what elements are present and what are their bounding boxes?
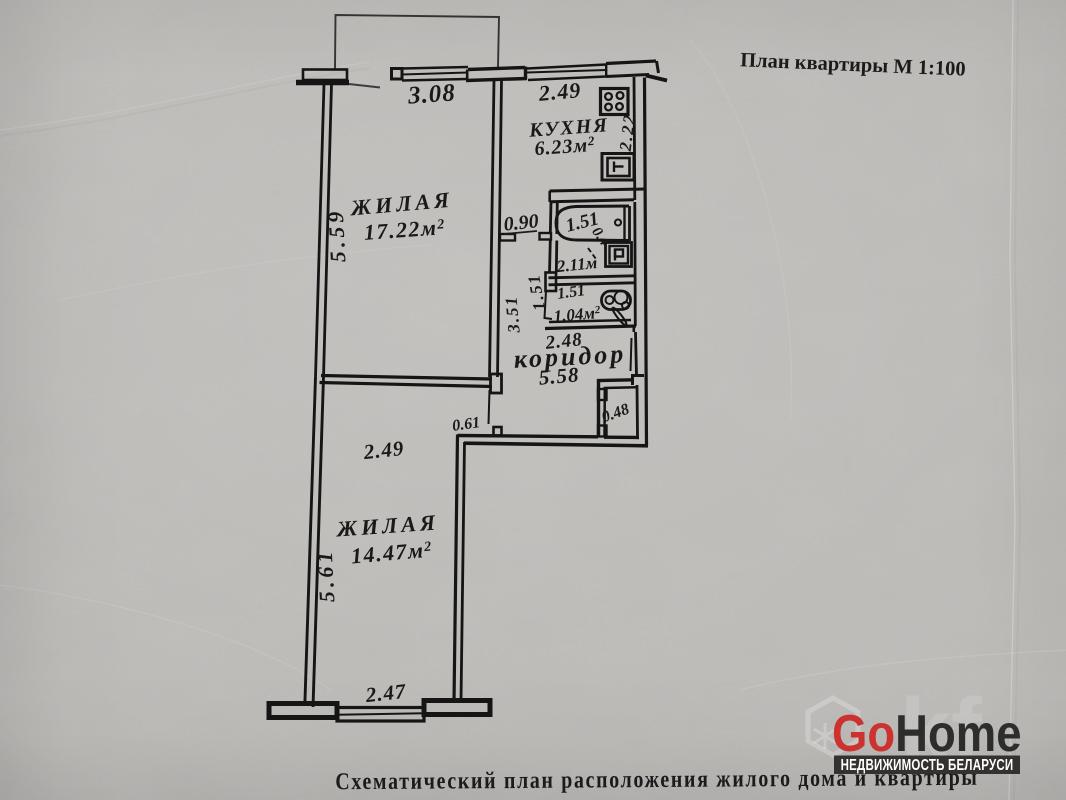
svg-text:2.49: 2.49 — [537, 77, 583, 106]
svg-text:2.47: 2.47 — [363, 679, 408, 707]
svg-text:3.08: 3.08 — [406, 79, 457, 109]
svg-text:6.23м2: 6.23м2 — [534, 133, 597, 160]
svg-text:17.22м2: 17.22м2 — [363, 214, 447, 245]
svg-text:5.59: 5.59 — [323, 207, 351, 263]
svg-text:14.47м2: 14.47м2 — [350, 536, 434, 568]
svg-text:5.61: 5.61 — [312, 547, 340, 603]
svg-text:5.58: 5.58 — [538, 362, 581, 389]
svg-text:План квартиры М 1:100: План квартиры М 1:100 — [740, 49, 966, 80]
svg-text:3.51: 3.51 — [501, 294, 523, 334]
svg-text:1.04м2: 1.04м2 — [553, 303, 602, 326]
svg-text:GoHome: GoHome — [832, 705, 1022, 762]
svg-text:ЖИЛАЯ: ЖИЛАЯ — [334, 509, 440, 541]
svg-text:НЕДВИЖИМОСТЬ БЕЛАРУСИ: НЕДВИЖИМОСТЬ БЕЛАРУСИ — [841, 755, 1014, 773]
svg-text:2.49: 2.49 — [361, 436, 405, 464]
svg-text:2.11м: 2.11м — [555, 253, 599, 276]
svg-text:1.51: 1.51 — [556, 282, 586, 303]
svg-text:ЖИЛАЯ: ЖИЛАЯ — [348, 187, 454, 221]
svg-text:0.61: 0.61 — [451, 414, 481, 435]
